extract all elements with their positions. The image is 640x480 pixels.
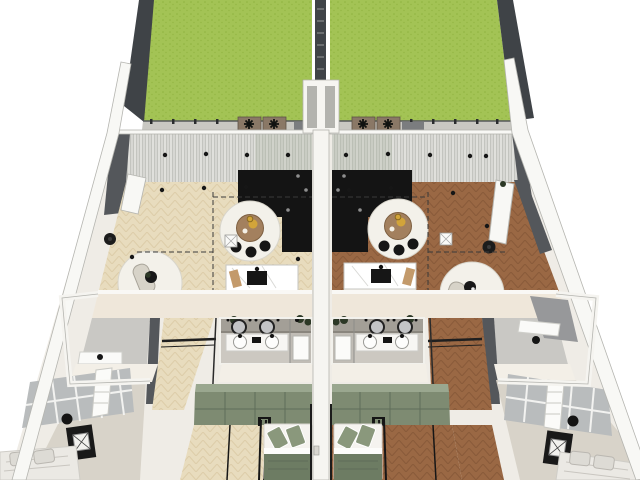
faucet-icon <box>400 334 404 338</box>
dining-chair <box>394 245 405 256</box>
rear-wall <box>330 130 515 134</box>
plant-icon <box>305 319 312 326</box>
left-rear-bedroom: Rear bedroom with sage wardrobe <box>180 384 312 480</box>
floor-plan-render: Left unit garden (lawn) Right unit garde… <box>0 0 640 480</box>
left-bathroom: Bathroom with double vanity and shower <box>220 315 312 364</box>
dining-chair <box>246 247 257 258</box>
faucet-icon <box>255 267 259 271</box>
desk-chair <box>532 336 540 344</box>
faucet-icon <box>379 265 383 269</box>
dining-chair <box>260 241 271 252</box>
wall-band <box>218 364 312 382</box>
right-dining-set <box>368 199 428 259</box>
faucet-icon <box>368 334 372 338</box>
round-mirror-icon <box>398 320 412 334</box>
dining-chair <box>379 241 390 252</box>
plate <box>390 227 395 232</box>
plant-icon <box>333 319 340 326</box>
wall-light <box>62 414 73 425</box>
side-stool <box>225 235 237 247</box>
center-garden-fence: Garden dividing fence <box>315 0 326 82</box>
bed-sage <box>264 424 312 480</box>
left-cream-wall <box>92 294 312 318</box>
storage-box <box>402 122 424 130</box>
bed-sage <box>334 424 382 480</box>
shower-tray <box>293 336 309 360</box>
fixture <box>97 354 103 360</box>
party-wall: Party wall <box>313 130 329 480</box>
sink <box>371 269 391 283</box>
pendant-light-icon <box>395 214 401 220</box>
left-garden-lawn: Left unit garden (lawn) <box>143 0 312 121</box>
sink <box>247 271 267 285</box>
plant-icon <box>145 272 151 278</box>
left-dining-set <box>220 201 280 261</box>
bed-white <box>0 446 80 480</box>
round-mirror-icon <box>232 320 246 334</box>
faucet-icon <box>238 334 242 338</box>
party-wall-head <box>303 80 339 133</box>
faucet-icon <box>270 334 274 338</box>
round-mirror-icon <box>370 320 384 334</box>
wall-band <box>332 364 428 382</box>
rear-wall <box>109 130 312 134</box>
wall-light <box>568 416 579 427</box>
round-mirror-icon <box>260 320 274 334</box>
pendant-light-icon <box>247 216 253 222</box>
shower-tray <box>335 336 351 360</box>
dining-chair <box>408 239 419 250</box>
vanity-tray <box>252 337 261 343</box>
plate <box>243 229 248 234</box>
side-stool <box>440 233 452 245</box>
door-hinge <box>314 446 319 455</box>
right-garden-lawn: Right unit garden (lawn) <box>330 0 512 121</box>
vanity-tray <box>383 337 392 343</box>
right-bathroom: Bathroom with double vanity and shower <box>332 315 424 364</box>
plant-icon <box>500 181 506 187</box>
wardrobe-ladder <box>544 380 564 430</box>
